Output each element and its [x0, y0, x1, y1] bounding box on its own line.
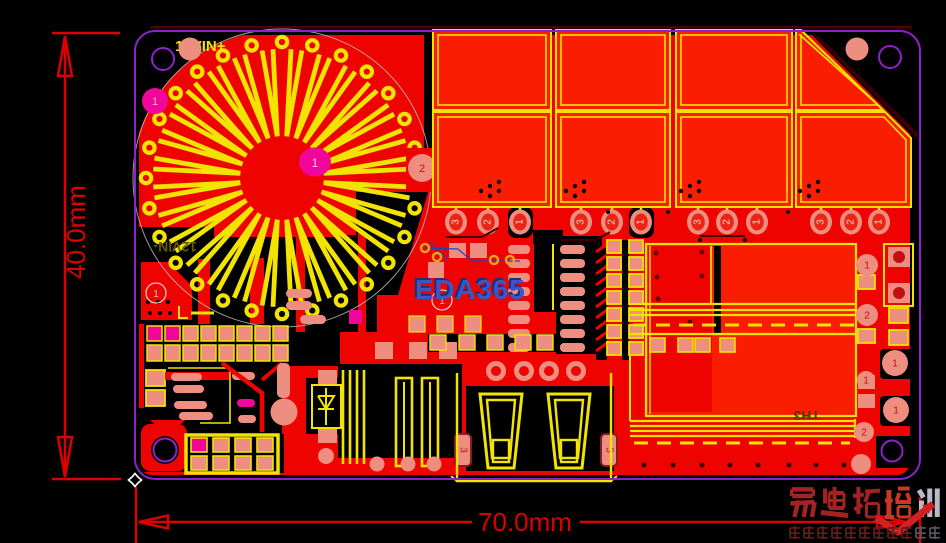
svg-text:2: 2: [864, 311, 870, 322]
svg-text:EDA365: EDA365: [415, 274, 526, 305]
svg-text:2: 2: [419, 163, 425, 175]
svg-text:3: 3: [457, 447, 468, 453]
svg-text:1: 1: [636, 219, 647, 225]
svg-text:70.0mm: 70.0mm: [478, 507, 572, 537]
svg-text:1: 1: [864, 261, 870, 272]
svg-text:1: 1: [312, 156, 319, 170]
svg-text:2: 2: [483, 219, 494, 225]
svg-text:2: 2: [861, 428, 867, 439]
svg-text:3: 3: [576, 219, 587, 225]
svg-text:1: 1: [153, 289, 159, 300]
svg-text:2: 2: [607, 219, 618, 225]
svg-text:40.0mm: 40.0mm: [61, 185, 91, 279]
svg-text:1: 1: [892, 359, 898, 370]
svg-text:3: 3: [693, 219, 704, 225]
svg-text:3: 3: [816, 219, 827, 225]
svg-text:3: 3: [451, 219, 462, 225]
svg-text:1: 1: [893, 406, 899, 417]
svg-text:12VIN-: 12VIN-: [153, 239, 197, 255]
svg-text:1: 1: [752, 219, 763, 225]
svg-text:1: 1: [874, 219, 885, 225]
svg-text:1: 1: [152, 96, 158, 108]
svg-text:2: 2: [846, 219, 857, 225]
svg-text:1: 1: [515, 219, 526, 225]
svg-text:5: 5: [603, 447, 614, 453]
svg-text:2: 2: [722, 219, 733, 225]
svg-text:1: 1: [863, 376, 869, 387]
